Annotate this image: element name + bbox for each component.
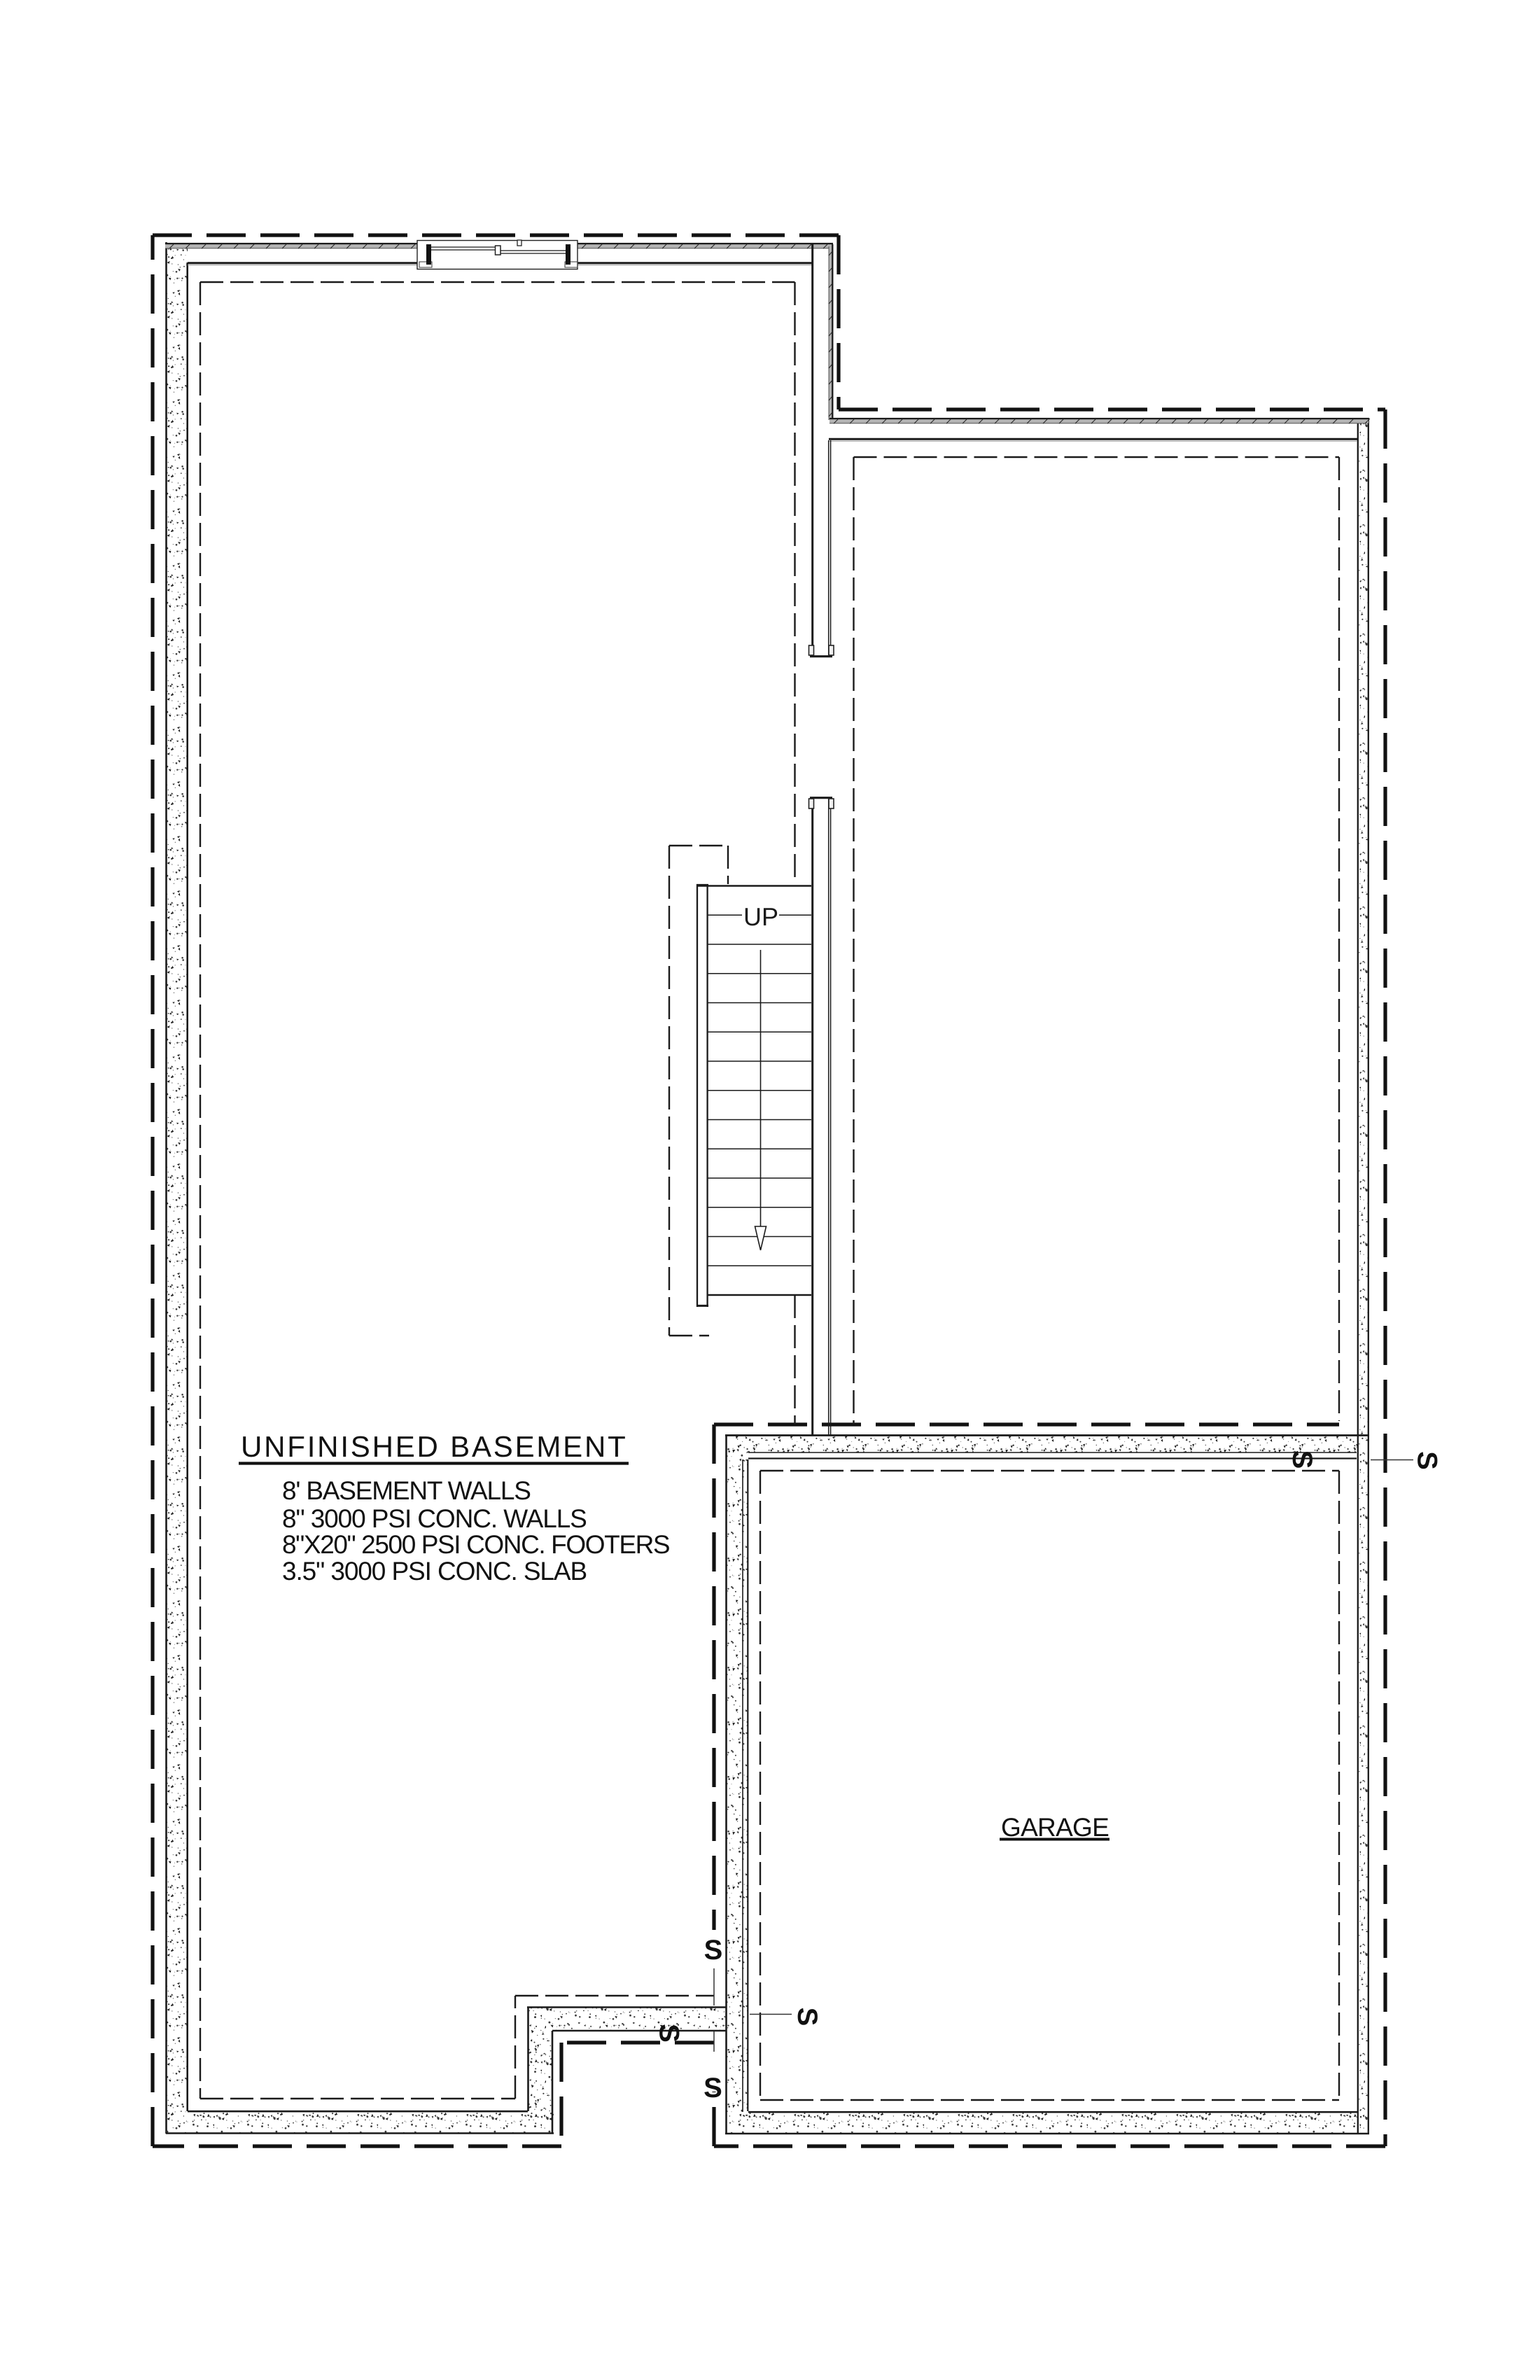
svg-text:UNFINISHED BASEMENT: UNFINISHED BASEMENT xyxy=(241,1430,628,1463)
svg-text:S: S xyxy=(703,2073,722,2103)
svg-text:8"X20" 2500 PSI CONC. FOOTERS: 8"X20" 2500 PSI CONC. FOOTERS xyxy=(282,1530,669,1559)
svg-text:8' BASEMENT WALLS: 8' BASEMENT WALLS xyxy=(282,1476,531,1505)
svg-text:8" 3000 PSI CONC. WALLS: 8" 3000 PSI CONC. WALLS xyxy=(282,1504,587,1533)
svg-text:S: S xyxy=(704,1935,723,1966)
svg-text:S: S xyxy=(654,2024,685,2043)
svg-text:S: S xyxy=(1287,1450,1317,1469)
svg-text:3.5" 3000 PSI CONC. SLAB: 3.5" 3000 PSI CONC. SLAB xyxy=(282,1557,587,1585)
svg-text:UP: UP xyxy=(743,902,778,931)
svg-text:S: S xyxy=(792,2008,822,2026)
svg-text:GARAGE: GARAGE xyxy=(1001,1813,1109,1842)
svg-text:S: S xyxy=(1412,1451,1443,1470)
